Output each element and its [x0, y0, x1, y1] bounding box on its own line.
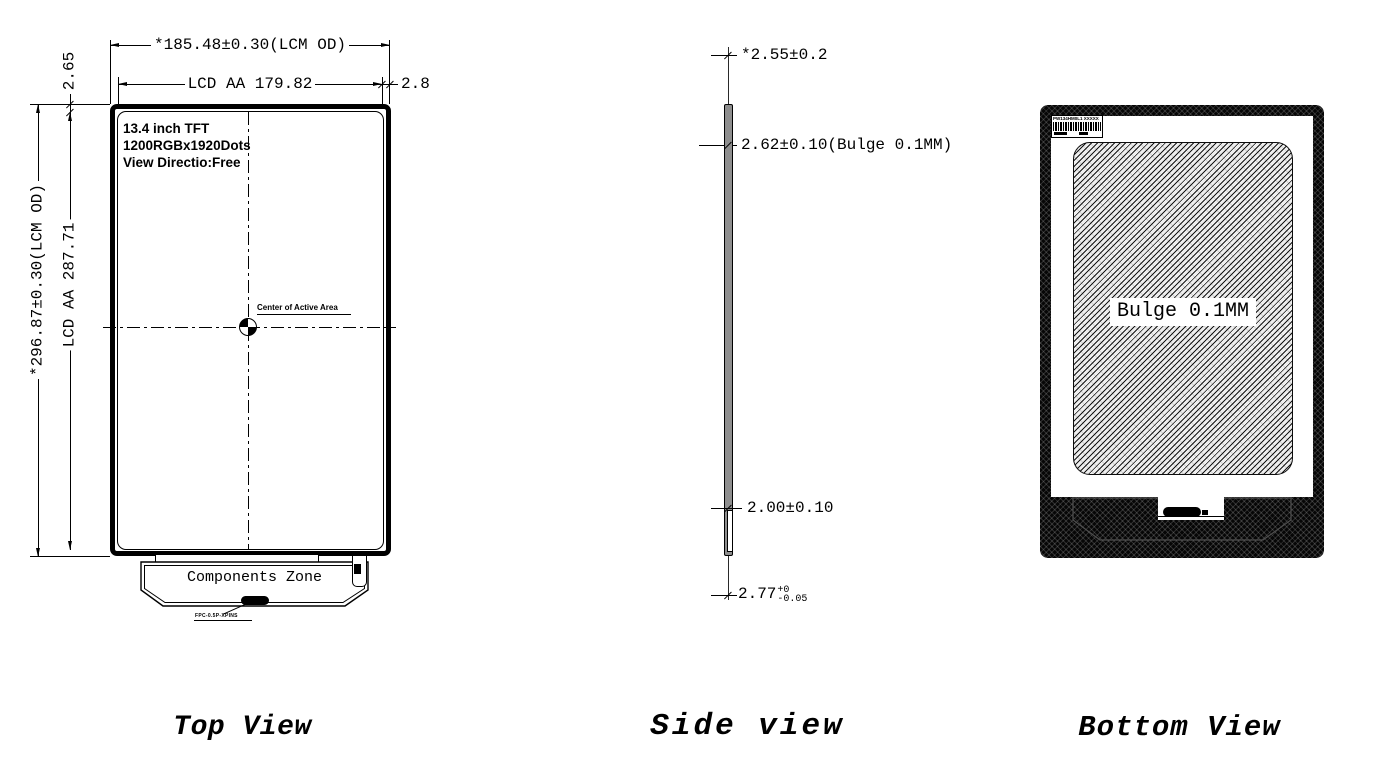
dim-width-aa: LCD AA 179.82 [185, 75, 316, 94]
center-label: Center of Active Area [257, 303, 338, 313]
bulge-label: Bulge 0.1MM [1110, 298, 1256, 326]
barcode-stripes-icon [1053, 122, 1101, 131]
dim-height-aa: LCD AA 287.71 [61, 220, 80, 351]
dim-side-total: 2.77 [738, 585, 776, 604]
dim-arrowhead [68, 541, 72, 550]
connector-label: FPC-0.5P-XPINS [195, 613, 238, 619]
components-zone-label-wrap: Components Zone [141, 568, 368, 587]
side-view-fpc-segment [727, 510, 733, 552]
dim-side-top: *2.55±0.2 [738, 46, 830, 65]
drawing-canvas: *185.48±0.30(LCM OD) LCD AA 179.82 2.8 *… [0, 0, 1391, 762]
side-view-title: Side view [635, 709, 860, 744]
dim-side-total-wrap: 2.77 +0 -0.05 [738, 585, 807, 604]
barcode-text: PW134HM0L1 XXXXX [1052, 116, 1102, 122]
dim-line-side-total [711, 595, 737, 596]
dim-height-od: *296.87±0.30(LCM OD) [29, 181, 48, 379]
panel-info-line2: 1200RGBx1920Dots [123, 137, 251, 154]
panel-info-line3: View Directio:Free [123, 154, 251, 171]
barcode-footer-marks [1052, 131, 1102, 136]
ext-line [30, 556, 110, 557]
connector-label-underline [194, 620, 252, 621]
dim-arrowhead [36, 104, 40, 113]
dim-top-margin: 2.65 [61, 49, 80, 93]
barcode-footer-dash [1054, 132, 1067, 135]
bottom-fpc-connector [1163, 507, 1201, 517]
side-view-profile [724, 104, 733, 556]
barcode-label: PW134HM0L1 XXXXX [1051, 115, 1103, 138]
panel-info-line1: 13.4 inch TFT [123, 120, 251, 137]
dim-right-margin: 2.8 [398, 75, 433, 94]
dim-width-aa-wrap: LCD AA 179.82 [118, 75, 382, 94]
dim-width-od: *185.48±0.30(LCM OD) [151, 36, 349, 55]
center-mark-icon [239, 318, 257, 336]
dim-line-side-top [711, 55, 737, 56]
center-label-underline [257, 314, 351, 315]
components-zone-outline [130, 555, 380, 630]
barcode-footer-dash [1079, 132, 1088, 135]
components-zone-label: Components Zone [185, 569, 324, 586]
dim-side-bulge: 2.62±0.10(Bulge 0.1MM) [738, 136, 955, 155]
dim-side-total-tolerance: +0 -0.05 [777, 586, 807, 604]
bottom-view-title: Bottom View [1072, 711, 1287, 744]
dim-side-lower: 2.00±0.10 [744, 499, 836, 518]
top-view-title: Top View [160, 712, 325, 743]
bottom-connector-mark [1202, 510, 1208, 515]
panel-info: 13.4 inch TFT 1200RGBx1920Dots View Dire… [123, 120, 251, 171]
dim-width-od-wrap: *185.48±0.30(LCM OD) [110, 36, 390, 55]
side-tab-mark [354, 564, 361, 574]
tolerance-minus: -0.05 [777, 595, 807, 604]
dim-arrowhead [36, 548, 40, 557]
